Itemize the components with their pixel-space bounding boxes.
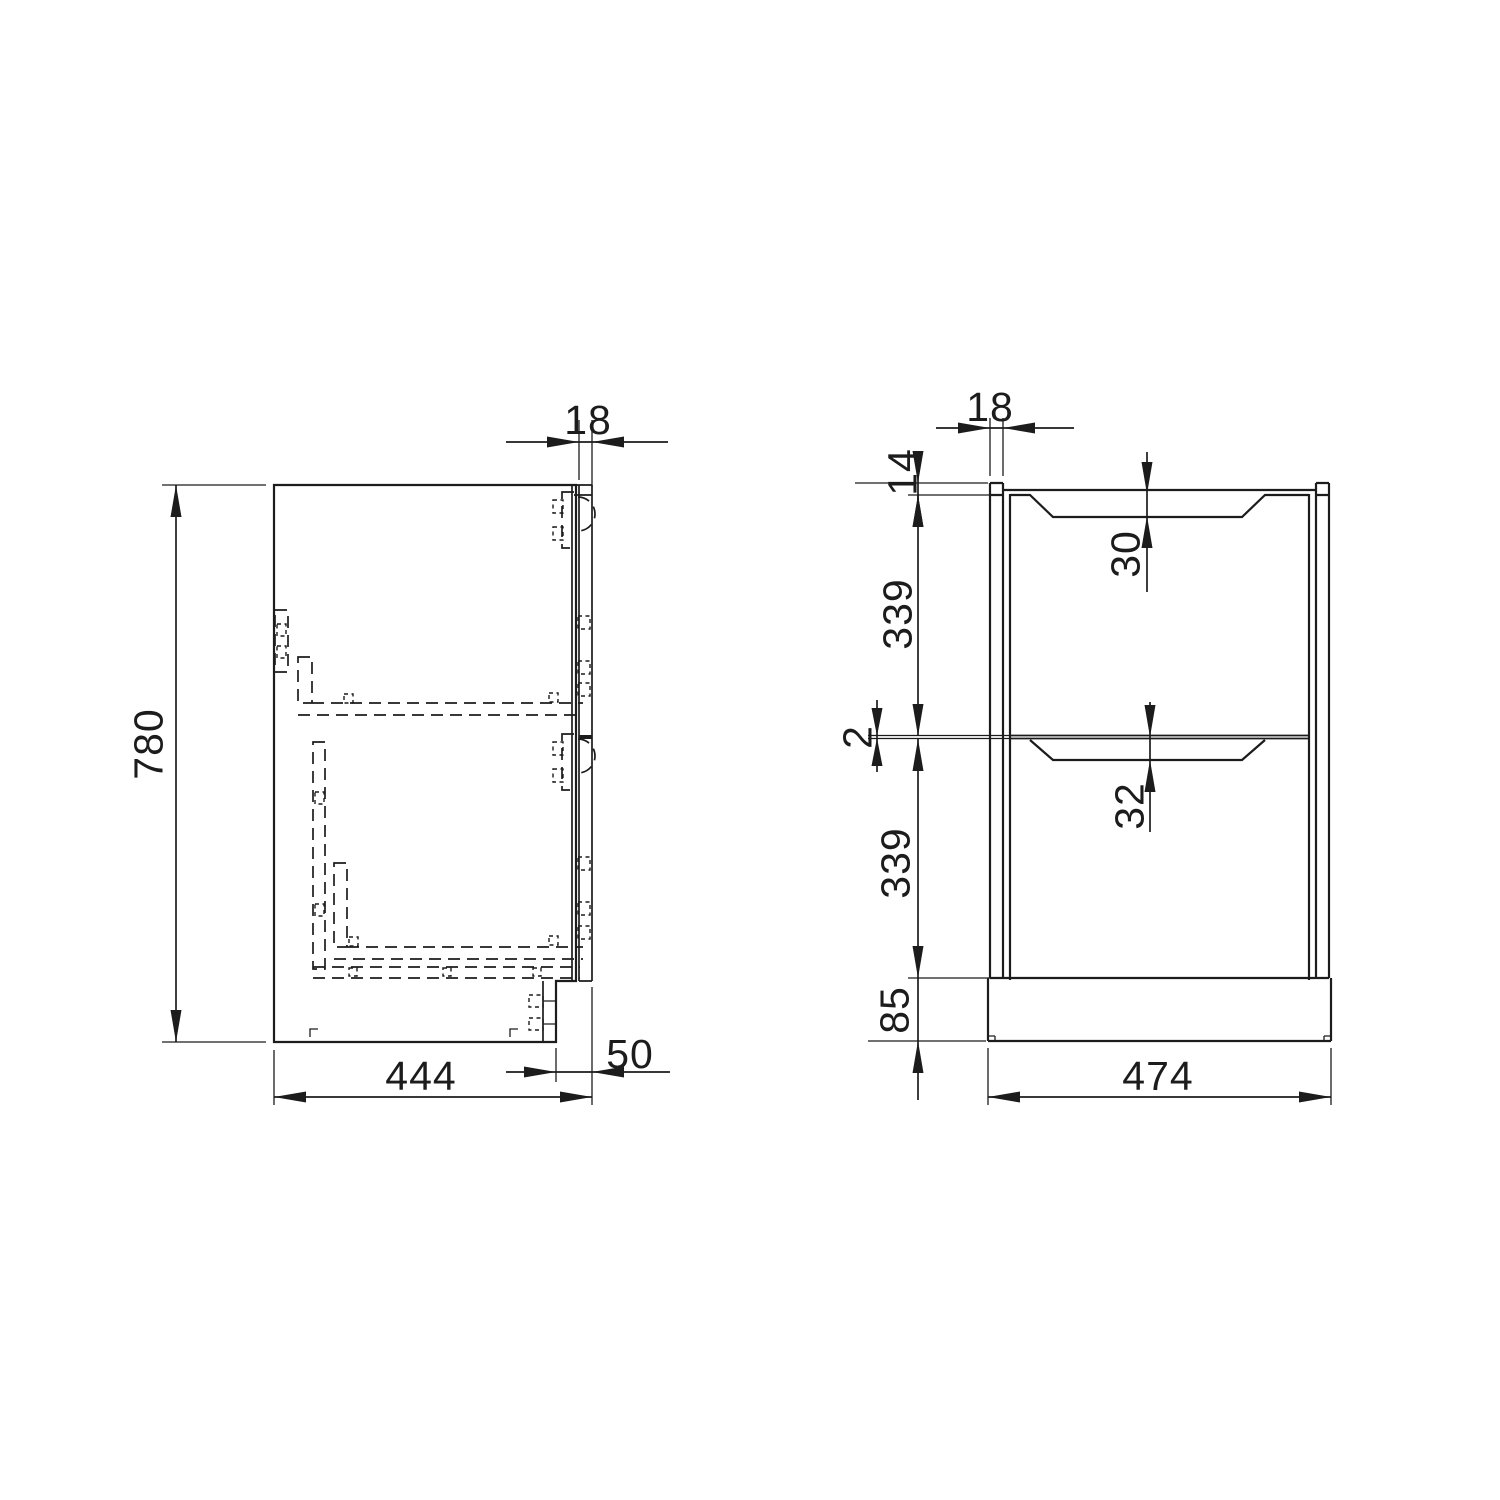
dim-label-front-recess-upper: 30 [1102, 530, 1148, 578]
side-small-solid-details [310, 1001, 556, 1037]
dim-label-front-drawer-upper: 339 [874, 578, 920, 649]
dim-front-panel-thickness: 18 [936, 384, 1074, 476]
dim-side-height-extensions [162, 485, 266, 1042]
side-view-drawer-internals [275, 492, 595, 1030]
dim-label-front-recess-lower: 32 [1106, 782, 1152, 830]
side-clip-marks-dashed [277, 500, 590, 1030]
dim-front-gap-extensions [868, 736, 1010, 739]
dim-label-front-panel-thickness: 18 [966, 384, 1014, 430]
dim-side-depth: 444 [274, 987, 592, 1105]
side-view: 780 18 444 50 [125, 397, 670, 1105]
dim-front-width: 474 [988, 1048, 1331, 1105]
dim-front-recess-lower: 32 [1106, 702, 1155, 832]
dim-front-drawer-upper: 339 [874, 495, 923, 736]
dim-front-recess-upper: 30 [1102, 452, 1152, 592]
front-structure-lines [988, 483, 1331, 1041]
dim-label-front-drawer-lower: 339 [872, 827, 918, 898]
dim-side-front-thickness: 18 [506, 397, 668, 487]
front-drawer-gap-lines [1010, 736, 1309, 739]
dim-front-drawer-lower: 339 [872, 739, 990, 978]
dim-label-front-width: 474 [1122, 1053, 1193, 1099]
dim-label-side-plinth-recess: 50 [606, 1031, 654, 1077]
dim-side-height: 780 [125, 485, 266, 1042]
dim-front-plinth-arrows [913, 1041, 924, 1073]
dim-label-front-gap: 2 [834, 725, 880, 749]
dim-label-front-plinth-height: 85 [871, 986, 917, 1034]
dim-label-side-depth: 444 [385, 1053, 456, 1099]
technical-drawing: 780 18 444 50 [0, 0, 1500, 1500]
dim-front-plinth-height: 85 [868, 978, 986, 1100]
side-drawer-slide-rails-dashed [275, 610, 583, 978]
dim-label-side-front-thickness: 18 [564, 397, 612, 443]
dim-side-plinth-recess: 50 [506, 1031, 670, 1082]
dim-label-side-height: 780 [125, 708, 171, 779]
front-view-cabinet [988, 483, 1331, 1041]
dim-label-front-top-reveal: 14 [879, 448, 925, 496]
front-view: 18 14 339 2 339 8 [834, 384, 1331, 1105]
dim-front-top-reveal: 14 [855, 448, 990, 527]
